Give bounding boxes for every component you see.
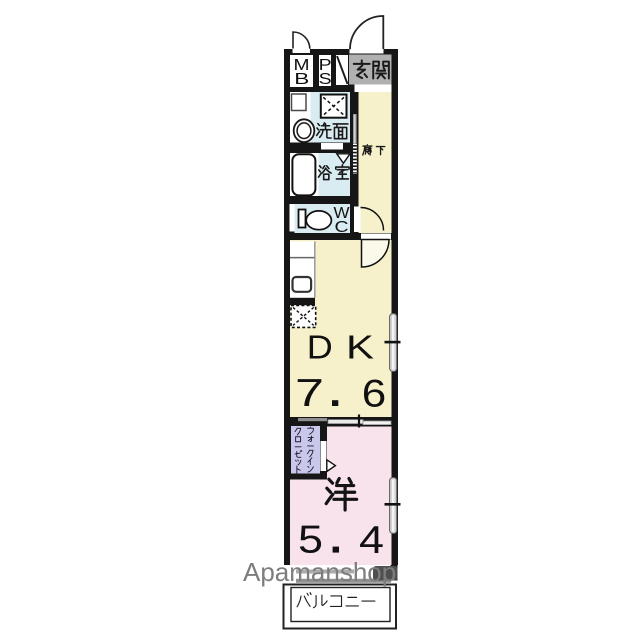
svg-text:7: 7	[295, 372, 324, 415]
svg-text:D: D	[307, 330, 333, 367]
svg-text:B: B	[294, 71, 309, 88]
svg-text:6: 6	[362, 373, 387, 416]
svg-text:C: C	[335, 219, 349, 236]
svg-text:Apamanshop: Apamanshop	[243, 557, 396, 587]
svg-text:K: K	[346, 330, 374, 367]
svg-text:5: 5	[298, 519, 323, 562]
svg-text:S: S	[319, 71, 332, 88]
svg-text:4: 4	[359, 519, 384, 562]
